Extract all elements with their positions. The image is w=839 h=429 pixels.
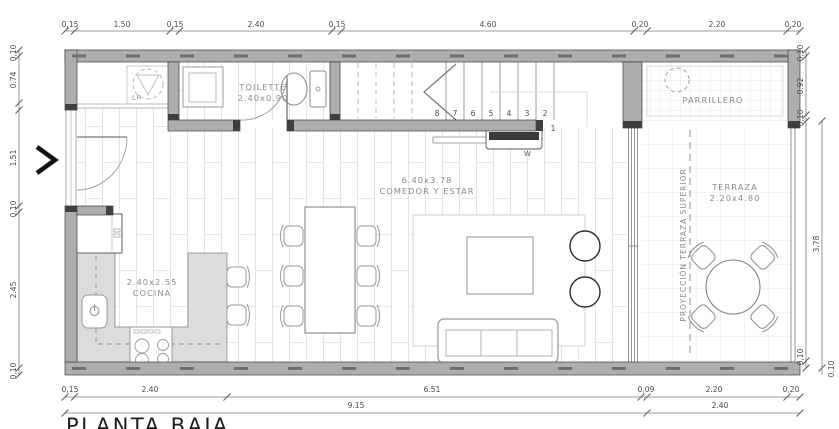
- wall-west-lower: [65, 206, 77, 362]
- dim-label: 0,15: [329, 20, 346, 29]
- dim-label: 3.78: [812, 235, 821, 252]
- sofa: [438, 319, 558, 363]
- shelf: [433, 137, 486, 143]
- wall-toilette-stair: [330, 62, 340, 120]
- room-label-toilette-name: TOILETTE: [238, 82, 286, 92]
- wall-stair-south: [287, 120, 536, 131]
- dim-label: 2.40: [712, 401, 729, 410]
- room-label-toilette-size: 2.40x0.90: [238, 93, 289, 103]
- dim-label: 0,15: [167, 20, 184, 29]
- room-label-cocina-size: 2.40x2.55: [127, 277, 178, 287]
- step-number: 5: [489, 109, 494, 118]
- dim-label: 4.60: [480, 20, 497, 29]
- dim-label: 0,20: [785, 20, 802, 29]
- step-number: 6: [471, 109, 476, 118]
- dim-label: 2.20: [709, 20, 726, 29]
- kitchen-sink: [82, 295, 107, 328]
- wall-west-upper: [65, 50, 77, 110]
- room-label-comedor-name: COMEDOR Y ESTAR: [379, 186, 474, 196]
- laundry-label: LR: [132, 94, 142, 102]
- step-number: 2: [543, 109, 548, 118]
- step-number: 3: [525, 109, 530, 118]
- stair-window-label: W: [524, 150, 531, 158]
- dim-label: 0.74: [9, 71, 18, 88]
- dim-label: 2.40: [142, 385, 159, 394]
- dim-label: 0.92: [796, 77, 805, 94]
- room-label-cocina-name: COCINA: [133, 288, 171, 298]
- dim-label: 0,20: [783, 385, 800, 394]
- room-label-comedor-size: 6.40x3.78: [402, 175, 453, 185]
- room-label-parrillero: PARRILLERO: [683, 95, 744, 105]
- dim-label: 0,15: [62, 385, 79, 394]
- floor-plan-drawing: TOILETTE 2.40x0.90 2.40x2.55 COCINA 6.40…: [0, 0, 839, 429]
- step-number: 8: [435, 109, 440, 118]
- dim-label: 0,10: [9, 362, 18, 379]
- dim-label: 0,10: [796, 109, 805, 126]
- room-label-terraza-name: TERRAZA: [711, 182, 758, 192]
- cabinet-dark-band: [489, 132, 539, 140]
- dim-label: 9.15: [348, 401, 365, 410]
- dim-label: 0,10: [796, 348, 805, 365]
- dim-label: 0.10: [827, 360, 836, 377]
- room-label-terraza-size: 2.20x4.80: [710, 193, 761, 203]
- step-number: 4: [507, 109, 512, 118]
- dim-label: 1.51: [9, 149, 18, 166]
- parrillero-floor: [642, 62, 788, 121]
- dim-label: 0,10: [9, 44, 18, 61]
- dim-label: 6.51: [424, 385, 441, 394]
- dim-label: 0,10: [796, 44, 805, 61]
- wall-south: [65, 362, 800, 375]
- dim-label: 2.20: [706, 385, 723, 394]
- dim-label: 0,10: [9, 200, 18, 217]
- refrigerator: [75, 214, 122, 253]
- cooktop: [130, 327, 172, 367]
- pouf-bottom: [570, 277, 600, 307]
- wall-laundry-toilette: [168, 62, 179, 120]
- pouf-top: [570, 231, 600, 261]
- step-number: 1: [551, 124, 556, 133]
- living-set: [413, 215, 600, 363]
- wall-north: [65, 50, 800, 62]
- coffee-table: [467, 237, 533, 294]
- dining-table: [305, 207, 355, 333]
- entry-deck-floor: [77, 108, 168, 130]
- dining-set: [281, 207, 380, 333]
- dim-label: 2.45: [9, 281, 18, 298]
- dim-label: 0,20: [632, 20, 649, 29]
- plan-title: PLANTA BAJA: [66, 414, 230, 429]
- wall-parrillero-west: [623, 62, 642, 128]
- terraza-round-table: [706, 260, 760, 314]
- room-label-proyeccion: PROYECCIÓN TERRAZA SUPERIOR: [679, 168, 688, 321]
- dim-label: 0,09: [638, 385, 655, 394]
- dim-label: 2.40: [248, 20, 265, 29]
- dim-label: 1.50: [114, 20, 131, 29]
- wall-toilette-south-left: [168, 120, 240, 131]
- floor-plan-page: TOILETTE 2.40x0.90 2.40x2.55 COCINA 6.40…: [0, 0, 839, 429]
- dim-label: 0,15: [62, 20, 79, 29]
- step-number: 7: [453, 109, 458, 118]
